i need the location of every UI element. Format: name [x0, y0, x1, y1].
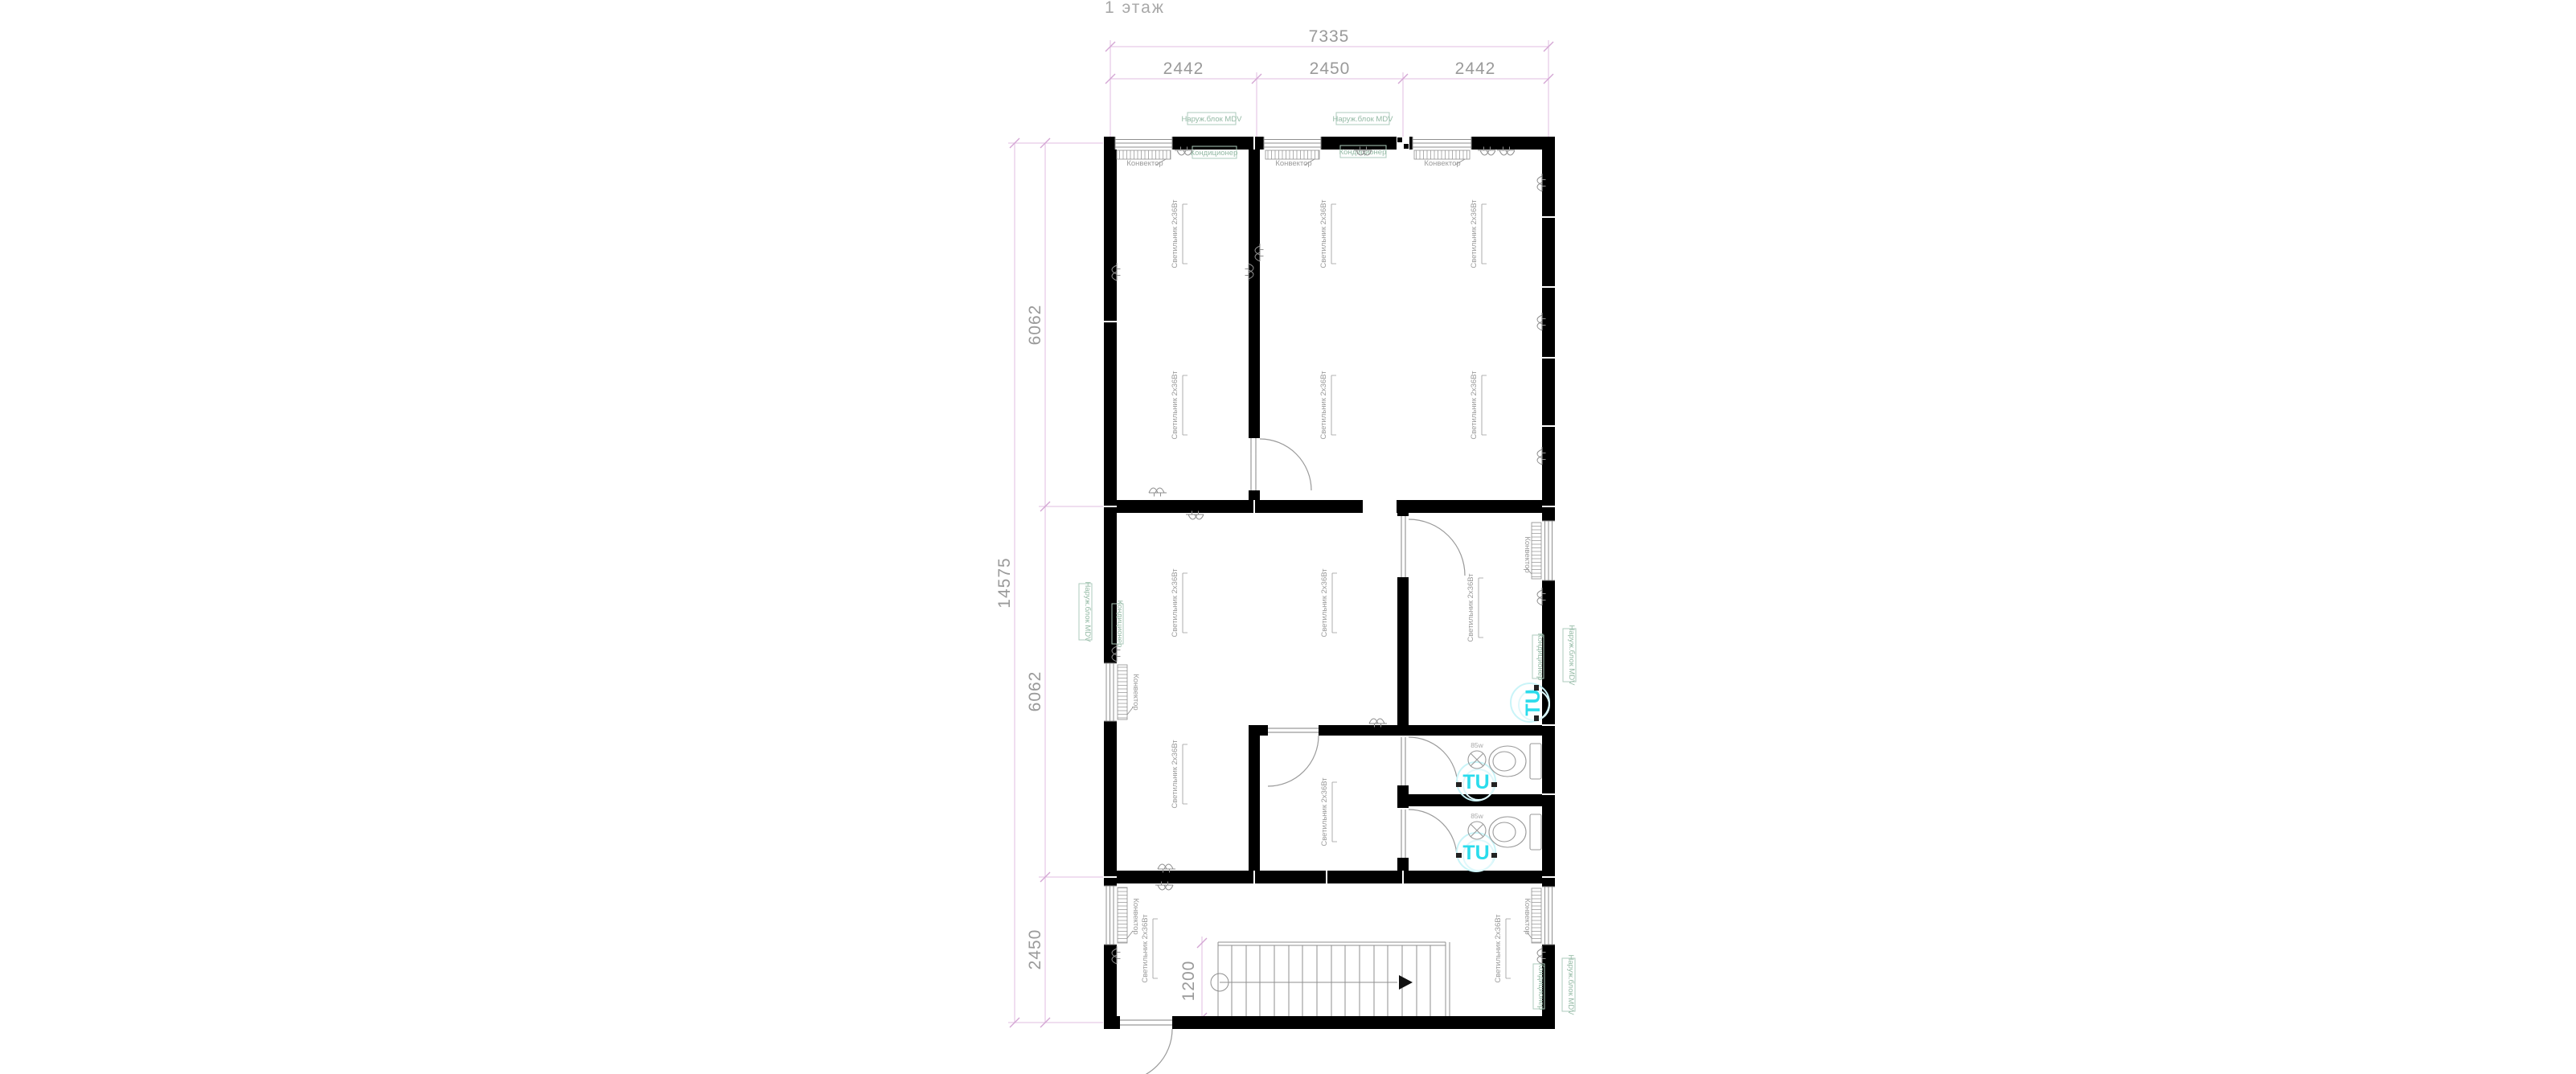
outdoor-unit-label: Наруж.блок MDV — [1332, 115, 1393, 124]
fan-socket-icon — [1491, 782, 1497, 787]
dim-top-seg-1: 2442 — [1163, 59, 1204, 78]
light-label: Светильник 2x36Вт — [1171, 740, 1179, 809]
fan-socket-icon — [1456, 782, 1462, 787]
light-label: Светильник 2x36Вт — [1319, 199, 1328, 268]
convector-label: Конвектор — [1523, 536, 1532, 572]
light-label: Светильник 2x36Вт — [1470, 199, 1479, 268]
light-label: Светильник 2x36Вт — [1319, 371, 1328, 440]
door-top-rooms — [1251, 438, 1311, 490]
light-label: Светильник 2x36Вт — [1171, 199, 1179, 268]
dim-top-total: 7335 — [1309, 27, 1350, 46]
convector-label: Конвектор — [1126, 159, 1163, 168]
ac-label: Кондиционер — [1115, 601, 1124, 648]
light-label: Светильник 2x36Вт — [1171, 568, 1179, 637]
toilet-wc-1 — [1489, 744, 1541, 779]
fan-label: TU — [1522, 689, 1544, 715]
door-right-mid-room — [1401, 516, 1465, 577]
light-label: Светильник 2x36Вт — [1470, 371, 1479, 440]
light-label: Светильник 2x36Вт — [1466, 573, 1475, 642]
door-wc-1 — [1401, 737, 1458, 786]
dim-stair-width: 1200 — [1179, 961, 1198, 1002]
convector-label: Конвектор — [1523, 898, 1532, 934]
fan-socket-icon — [1534, 715, 1539, 721]
staircase — [1211, 942, 1450, 1016]
dim-left-seg-3: 2450 — [1026, 929, 1044, 970]
light-label: Светильник 2x36Вт — [1171, 371, 1179, 440]
light-label: Светильник 2x36Вт — [1494, 914, 1503, 983]
page-title: 1 этаж — [1105, 0, 1165, 17]
outdoor-unit-label: Наруж.блок MDV — [1567, 625, 1576, 686]
fan-socket-icon — [1534, 685, 1539, 691]
light-label-brackets — [1153, 204, 1511, 978]
convector-strips — [1117, 150, 1541, 943]
wall-mid-horizontal-east — [1397, 500, 1542, 513]
stair-up-arrow-icon — [1399, 975, 1413, 990]
fan-label: TU — [1462, 771, 1489, 793]
fan-label: TU — [1462, 842, 1489, 864]
wall-mid-horizontal-west — [1117, 500, 1363, 513]
floor-plan-canvas: 1 этаж 7335 2442 2450 2442 14575 6062 60… — [0, 0, 2576, 1074]
outdoor-unit-label: Наруж.блок MDV — [1181, 115, 1242, 124]
ac-label: Кондиционер — [1536, 633, 1544, 681]
ac-label: Кондиционер — [1191, 149, 1238, 158]
lamp-watt-label: 85w — [1471, 812, 1483, 820]
ceiling-lamp-wc-1 — [1468, 751, 1486, 769]
dim-top-seg-3: 2442 — [1455, 59, 1496, 78]
wall-joint-pier — [1397, 137, 1409, 150]
fan-socket-icon — [1491, 853, 1497, 858]
lamp-watt-label: 85w — [1471, 741, 1483, 749]
floor-plan-page: 1 этаж 7335 2442 2450 2442 14575 6062 60… — [0, 0, 2576, 1074]
toilet-wc-2 — [1489, 814, 1541, 850]
outdoor-unit-label: Наруж.блок MDV — [1566, 954, 1575, 1015]
convector-label: Конвектор — [1424, 159, 1460, 168]
ac-label: Кондиционер — [1339, 148, 1387, 157]
convector-label: Конвектор — [1131, 898, 1140, 934]
ac-label: Кондиционер — [1536, 963, 1545, 1010]
light-label: Светильник 2x36Вт — [1141, 914, 1150, 983]
light-label: Светильник 2x36Вт — [1320, 568, 1329, 637]
dim-top-seg-2: 2450 — [1310, 59, 1351, 78]
wall-vestibule-west — [1249, 725, 1260, 871]
dim-left-seg-1: 6062 — [1026, 305, 1044, 346]
door-wc-vestibule — [1268, 728, 1319, 786]
dim-left-seg-2: 6062 — [1026, 671, 1044, 712]
ceiling-lamp-wc-2 — [1468, 822, 1486, 839]
door-wc-2 — [1401, 810, 1457, 858]
light-labels: Светильник 2x36Вт Светильник 2x36Вт Свет… — [1141, 199, 1511, 983]
convector-label: Конвектор — [1275, 159, 1311, 168]
wall-corridor-top — [1117, 871, 1542, 883]
light-label: Светильник 2x36Вт — [1320, 777, 1329, 846]
convector-label: Конвектор — [1131, 674, 1140, 710]
outdoor-unit-label: Наруж.блок MDV — [1083, 581, 1092, 642]
dim-left-total: 14575 — [995, 557, 1014, 608]
fan-socket-icon — [1456, 853, 1462, 858]
fan-right-room: TU — [1511, 683, 1549, 722]
